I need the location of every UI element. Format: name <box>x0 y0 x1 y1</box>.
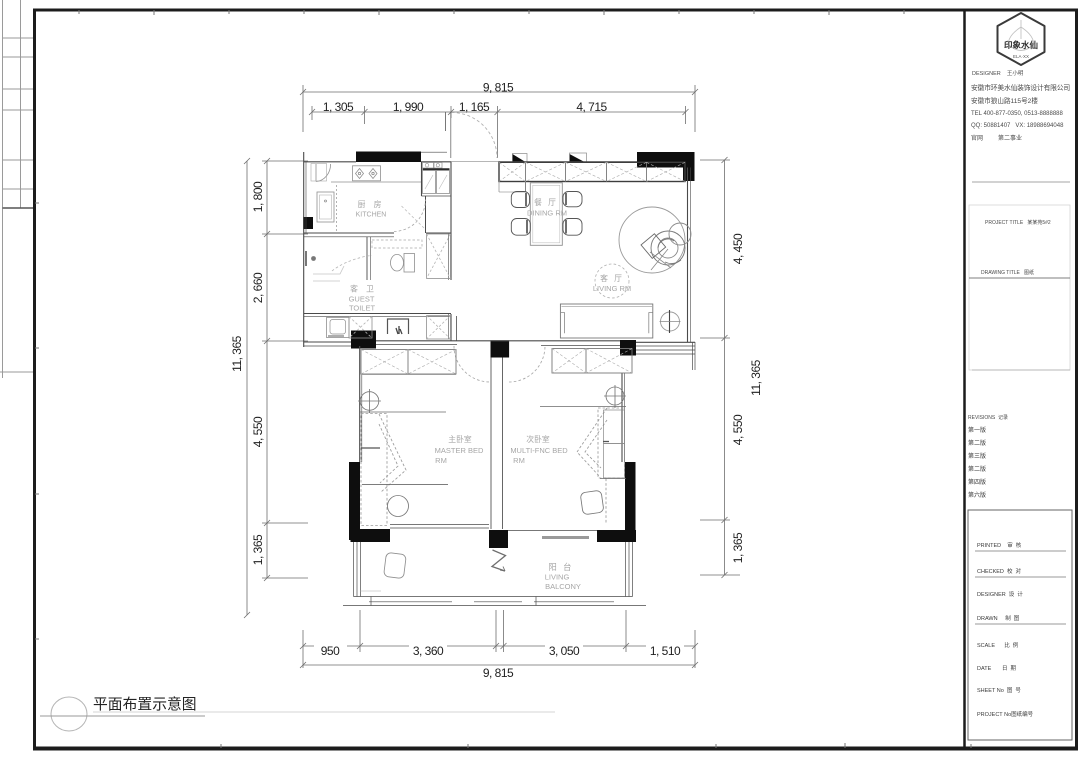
svg-text:次卧室: 次卧室 <box>526 434 550 444</box>
svg-text:1, 165: 1, 165 <box>459 100 490 114</box>
svg-text:11, 365: 11, 365 <box>749 359 763 395</box>
svg-text:4, 550: 4, 550 <box>731 414 745 445</box>
svg-text:SHEET No 图 号: SHEET No 图 号 <box>977 686 1021 694</box>
svg-text:MASTER BED: MASTER BED <box>435 446 484 455</box>
svg-text:第三版: 第三版 <box>968 452 986 460</box>
svg-text:QQ: 50881407 VX: 18988694048: QQ: 50881407 VX: 18988694048 <box>971 123 1064 129</box>
svg-text:RM: RM <box>513 456 525 465</box>
svg-text:1, 510: 1, 510 <box>650 644 681 658</box>
svg-text:第二版: 第二版 <box>968 465 986 473</box>
svg-text:11, 365: 11, 365 <box>230 335 244 371</box>
svg-text:DESIGNER 设 计: DESIGNER 设 计 <box>977 590 1023 598</box>
svg-text:3, 360: 3, 360 <box>413 644 444 658</box>
svg-text:RM: RM <box>435 456 447 465</box>
svg-text:DATE 日 期: DATE 日 期 <box>977 665 1017 672</box>
svg-text:安徽市狼山路115号2楼: 安徽市狼山路115号2楼 <box>971 96 1038 105</box>
svg-text:主卧室: 主卧室 <box>448 434 472 444</box>
svg-text:BALCONY: BALCONY <box>545 582 581 591</box>
svg-text:DESIGNER 王小明: DESIGNER 王小明 <box>972 69 1024 77</box>
svg-text:PROJECT TITLE 某某苑5#2: PROJECT TITLE 某某苑5#2 <box>985 219 1051 226</box>
svg-text:印象水仙: 印象水仙 <box>1004 40 1038 50</box>
svg-text:1, 365: 1, 365 <box>731 532 745 563</box>
svg-text:官网 第二事业: 官网 第二事业 <box>971 134 1022 142</box>
svg-text:KITCHEN: KITCHEN <box>356 212 387 219</box>
svg-text:950: 950 <box>321 644 340 658</box>
svg-text:1, 800: 1, 800 <box>251 181 265 212</box>
svg-text:SCALE 比 例: SCALE 比 例 <box>977 641 1019 649</box>
svg-text:客 厅: 客 厅 <box>600 273 624 283</box>
svg-text:2, 660: 2, 660 <box>251 272 265 303</box>
svg-text:DRAWN 制 图: DRAWN 制 图 <box>977 614 1020 622</box>
svg-text:餐 厅: 餐 厅 <box>534 198 558 207</box>
svg-text:GUEST: GUEST <box>349 295 375 304</box>
svg-text:1, 365: 1, 365 <box>251 534 265 565</box>
svg-text:阳 台: 阳 台 <box>549 562 574 572</box>
svg-text:客 卫: 客 卫 <box>350 284 377 294</box>
svg-text:第一版: 第一版 <box>968 426 986 434</box>
svg-text:ELA·XX: ELA·XX <box>1013 54 1029 59</box>
svg-text:TEL 400-877-0350, 0513-8888888: TEL 400-877-0350, 0513-8888888 <box>971 111 1064 117</box>
svg-text:REVISIONS 记录: REVISIONS 记录 <box>968 414 1008 421</box>
svg-text:9, 815: 9, 815 <box>483 81 514 95</box>
svg-text:CHECKED 校 对: CHECKED 校 对 <box>977 567 1022 575</box>
svg-text:平面布置示意图: 平面布置示意图 <box>93 695 197 713</box>
svg-text:1, 990: 1, 990 <box>393 100 424 114</box>
svg-text:第六版: 第六版 <box>968 491 986 499</box>
svg-text:3, 050: 3, 050 <box>549 644 580 658</box>
svg-text:LIVING RM: LIVING RM <box>593 284 631 293</box>
svg-text:4, 715: 4, 715 <box>576 100 607 114</box>
svg-text:DRAWING TITLE 图纸: DRAWING TITLE 图纸 <box>981 269 1034 276</box>
svg-text:PRINTED 审 核: PRINTED 审 核 <box>977 541 1022 549</box>
svg-text:第二版: 第二版 <box>968 439 986 447</box>
svg-text:LIVING: LIVING <box>545 573 570 582</box>
svg-text:安徽市环美水仙装饰设计有限公司: 安徽市环美水仙装饰设计有限公司 <box>971 83 1070 92</box>
svg-text:4, 450: 4, 450 <box>731 233 745 264</box>
svg-text:DINING RM: DINING RM <box>527 209 567 218</box>
svg-text:TOILET: TOILET <box>349 304 376 313</box>
svg-text:MULTI-FNC BED: MULTI-FNC BED <box>510 446 568 455</box>
svg-text:1, 305: 1, 305 <box>323 100 354 114</box>
svg-text:厨 房: 厨 房 <box>358 199 385 209</box>
svg-text:第四版: 第四版 <box>968 478 986 486</box>
svg-text:9, 815: 9, 815 <box>483 666 514 680</box>
svg-text:PROJECT No图纸编号: PROJECT No图纸编号 <box>977 710 1034 718</box>
svg-text:4, 550: 4, 550 <box>251 416 265 447</box>
